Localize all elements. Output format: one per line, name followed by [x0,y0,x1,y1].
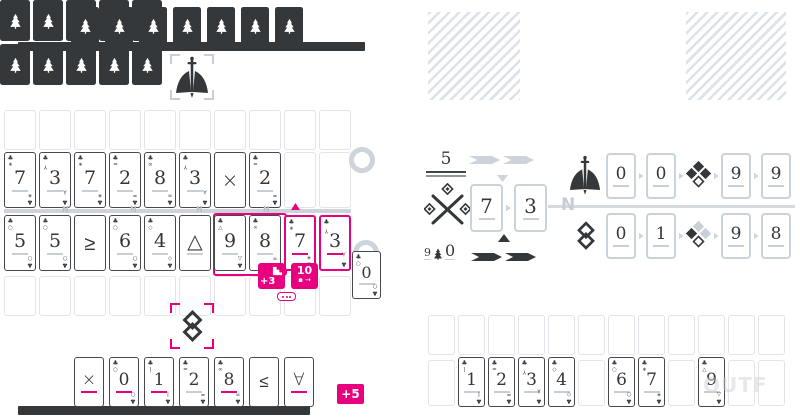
card-7[interactable]: 7♣∗♣∗ [74,152,106,208]
board-slot[interactable] [214,276,246,316]
card-3[interactable]: 3 [514,184,547,232]
card-3[interactable]: 3♣Y♣Y [319,215,351,271]
corner-marks: ♣Y [536,391,542,404]
suit-tree-icon: ♣ [272,199,278,206]
corner-marks: ♣| [462,360,468,373]
arrow-right-icon [639,233,644,240]
card-rank: 5 [49,232,61,251]
divider-mark: N [196,206,203,214]
rank-glyph-icon: Y [203,192,206,198]
rank-glyph-icon: = [506,391,511,397]
corner-marks: ♣○ [113,218,119,231]
rank-glyph-icon: Y [44,163,47,169]
tableau-slot[interactable] [668,315,695,355]
rank-glyph-icon: ∗ [78,163,83,169]
board-slot[interactable] [319,276,351,316]
suit-tree-icon: ♣ [476,398,482,405]
card-face: 2 [494,372,510,393]
target-score-value: 5 [426,150,466,169]
token-circle[interactable] [349,147,375,173]
rank-underline [47,253,63,255]
chevron-right-icon [471,253,502,261]
rank-glyph-icon: = [492,368,497,374]
player-hand: ×0♣○♣○1♣|♣|2♣=♣=8♣∞♣∞≤∀ [74,357,314,407]
tableau-slot[interactable] [548,315,575,355]
card-rank: 3 [524,196,537,216]
card-face: 8 [768,226,784,247]
arrow-right-icon [754,233,759,240]
rank-underline [479,218,495,220]
rank-glyph-icon: ∞ [218,368,223,374]
corner-marks: ♣∗ [289,219,295,232]
tableau-slot[interactable] [698,315,725,355]
card-face: 0 [653,166,669,187]
bracket-corner [204,90,214,100]
rank-glyph-icon: Y [325,227,328,233]
card-0[interactable]: 0♣○♣○ [109,357,139,407]
card-face: 1 [653,226,669,247]
advance-arrows-muted[interactable] [469,156,534,164]
card-×[interactable]: × [74,357,104,407]
corner-marks: ♣= [132,192,138,205]
advance-arrows-dark[interactable] [471,253,536,261]
card-△[interactable]: △ [179,215,211,271]
card-2[interactable]: 2♣=♣= [488,357,515,407]
suit-tree-icon: ♣ [218,218,224,225]
suit-tree-icon: ♣ [253,218,259,225]
suit-tree-icon: ♣ [289,219,295,226]
card-9: 9 [721,213,751,259]
tableau-slot[interactable] [428,360,455,406]
tree-icon [181,18,194,34]
rank-underline [257,190,273,192]
corner-marks: ♣| [165,391,171,404]
card-face: 1 [151,372,167,393]
rank-glyph-icon: = [272,192,277,198]
board-slot[interactable] [284,110,316,150]
rank-underline [768,245,784,247]
card-face: 5 [12,232,28,255]
rank-glyph-icon: = [253,163,258,169]
target-score: 5 [426,150,466,177]
suit-tree-icon: ♣ [27,199,33,206]
rank-glyph-icon: Y [342,254,345,260]
rank-glyph-icon: Y [63,192,66,198]
rank-underline [187,253,203,255]
card-0: 0 [606,153,636,199]
rank-glyph-icon: | [167,391,169,397]
card-face: 6 [614,372,630,393]
tree-icon [249,18,262,34]
rank-glyph-icon: ∗ [289,227,294,233]
card-face: 7 [479,196,495,220]
score-divider-line [548,205,795,208]
rank-underline [82,190,98,192]
card-≥[interactable]: ≥ [74,215,106,271]
card-0[interactable]: 0♣○♣○ [352,251,381,299]
triangle-up-icon[interactable] [498,234,510,242]
board-slot[interactable] [74,276,106,316]
card-9[interactable]: 9♣△♣△ [214,215,246,271]
card-1: 1 [646,213,676,259]
card-2[interactable]: 2♣=♣= [179,357,209,407]
card-face: 8 [152,169,168,192]
plus-five-badge: +5 [337,384,364,404]
card-rank: 6 [616,372,627,389]
tree-icon [113,18,126,34]
corner-marks: ♣∗ [642,360,648,373]
bonus-steps-value: +3 [260,277,275,287]
card-face: ∀ [291,372,307,393]
corner-marks: ♣◇ [148,218,154,231]
tableau-slot[interactable] [638,315,665,355]
suit-tree-icon: ♣ [62,262,68,269]
bracket-corner [204,54,214,64]
corner-marks: ♣∞ [148,155,154,168]
corner-marks: ♣Y [43,155,49,168]
rank-glyph-icon: ∗ [8,163,13,169]
arrow-right-icon [714,173,719,180]
game-board: 7♣∗♣∗3♣Y♣Y7♣∗♣∗2♣=♣=8♣∞♣∞3♣Y♣Y×2♣=♣= NNN… [0,0,800,420]
rank-underline [523,218,539,220]
rank-glyph-icon: ○ [62,255,67,261]
rank-underline [728,245,744,247]
corner-marks: ♣Y [62,192,68,205]
card-rank: △ [187,231,202,251]
suit-tree-icon: ♣ [148,155,154,162]
corner-marks: ♣∗ [8,155,14,168]
card-∀[interactable]: ∀ [284,357,314,407]
card-8[interactable]: 8♣∞♣∞ [214,357,244,407]
card-rank: 7 [84,169,96,188]
card-rank: 0 [616,226,627,243]
multiplier-left: 9 [424,246,431,260]
rank-glyph-icon: ∗ [27,192,32,198]
board-slot[interactable] [74,110,106,150]
rank-glyph-icon: ○ [113,368,118,374]
reserve-card-back[interactable] [33,0,63,41]
card-rank: 3 [329,232,341,251]
suit-tree-icon: ♣ [113,218,119,225]
tableau-slot[interactable] [578,360,605,406]
corner-marks: ♣Y [341,254,347,267]
suit-tree-icon: ♣ [200,398,206,405]
card-face: 1 [464,372,480,393]
linked-diamonds-icon [179,310,206,343]
corner-marks: ♣∞ [167,192,173,205]
board-slot[interactable] [4,110,36,150]
card-rank: 5 [14,232,26,251]
suit-tree-icon: ♣ [716,398,722,405]
board-slot[interactable] [109,110,141,150]
tree-icon [147,18,160,34]
rank-glyph-icon: ∞ [148,163,153,169]
card-rank: 7 [480,196,493,216]
corner-marks: ♣○ [612,360,618,373]
bracket-corner [170,339,180,349]
corner-marks: ♣○ [27,255,33,268]
card-rank: 7 [646,372,657,389]
tableau-slot[interactable] [728,315,755,355]
rank-underline [12,190,28,192]
tableau-slot[interactable] [578,315,605,355]
card-face: 4 [554,372,570,393]
corner-marks: ♣○ [372,283,378,296]
card-2[interactable]: 2♣=♣= [249,152,281,208]
triangle-down-icon[interactable] [497,175,508,182]
card-5[interactable]: 5♣○♣○ [39,215,71,271]
corner-marks: ♣= [272,192,278,205]
board-slot[interactable] [179,110,211,150]
divider-mark: N [263,206,270,214]
card-face: ≥ [85,233,96,253]
rank-underline [222,253,238,255]
arrow-right-icon [506,205,511,212]
card-rank: 3 [526,372,537,389]
nav-letter: N [561,197,575,214]
corner-marks: ♣○ [43,218,49,231]
card-1[interactable]: 1♣|♣| [458,357,485,407]
card-rank: 0 [361,265,371,281]
board-slot[interactable] [144,110,176,150]
suit-tree-icon: ♣ [27,262,33,269]
board-slot[interactable] [249,110,281,150]
score-row-top: 0099 [606,153,791,199]
chevron-right-icon [469,156,500,164]
rank-underline [291,391,307,393]
rank-glyph-icon: = [113,163,118,169]
board-slot[interactable] [39,276,71,316]
suit-tree-icon: ♣ [165,398,171,405]
corner-marks: ♣| [476,391,482,404]
rank-glyph-icon: Y [537,391,540,397]
card-face: 2 [186,372,202,393]
clover-icon [686,160,711,189]
corner-marks: ♣Y [202,192,208,205]
corner-marks: ♣◇ [552,360,558,373]
board-slot[interactable] [214,110,246,150]
suit-tree-icon: ♣ [148,218,154,225]
board-row-1: 7♣∗♣∗3♣Y♣Y7♣∗♣∗2♣=♣=8♣∞♣∞3♣Y♣Y×2♣=♣= [4,152,351,208]
rank-underline [613,185,629,187]
card-5[interactable]: 5♣○♣○ [4,215,36,271]
board-slot[interactable] [109,276,141,316]
card-≤[interactable]: ≤ [249,357,279,407]
rank-glyph-icon: ∞ [253,226,258,232]
opponent-card-back [275,7,303,45]
tree-icon [42,57,55,73]
card-rank: 0 [656,166,667,183]
card-rank: 6 [119,232,131,251]
suit-tree-icon: ♣ [656,398,662,405]
board-slot[interactable] [39,110,71,150]
corner-marks: ♣△ [237,255,243,268]
tableau-slot[interactable] [608,315,635,355]
card-×[interactable]: × [214,152,246,208]
tableau-row-top [428,315,785,355]
rank-glyph-icon: ◇ [167,255,171,261]
rank-glyph-icon: ○ [43,226,48,232]
card-4[interactable]: 4♣◇♣◇ [144,215,176,271]
reserve-zone-left [428,12,520,100]
tableau-slot[interactable] [428,315,455,355]
suit-tree-icon: ♣ [43,155,49,162]
card-rank: 8 [771,226,782,243]
board-slot[interactable] [284,152,316,208]
card-3[interactable]: 3♣Y♣Y [39,152,71,208]
rank-glyph-icon: ○ [626,391,631,397]
rank-underline [728,185,744,187]
card-rank: 1 [656,226,667,243]
clover-icon [686,220,711,249]
rank-glyph-icon: ∗ [656,391,661,397]
tree-icon [79,18,92,34]
card-7[interactable]: 7 [470,184,503,232]
rank-glyph-icon: ○ [130,391,135,397]
card-icon: ▪ [298,277,303,284]
card-rank: 7 [14,169,26,188]
opponent-card-back [105,7,133,45]
card-face: 8 [257,232,273,255]
card-face: 2 [117,169,133,192]
board-slot[interactable] [319,152,351,208]
faction-top-selector[interactable] [170,54,214,100]
suit-tree-icon: ♣ [341,261,347,268]
rule-line [426,175,466,177]
corner-marks: ♣○ [113,360,119,373]
player-shelf [18,406,310,415]
card-rank: ∀ [293,372,305,389]
rank-glyph-icon: ○ [113,226,118,232]
corner-marks: ♣∗ [27,192,33,205]
tableau-slot[interactable] [668,360,695,406]
tree-icon [75,57,88,73]
suit-tree-icon: ♣ [97,199,103,206]
reserve-card-back[interactable] [0,0,30,41]
rank-underline [152,253,168,255]
board-slot[interactable] [4,276,36,316]
corner-marks: ♣∞ [253,218,259,231]
card-rank: 2 [189,372,200,389]
card-face: 7 [12,169,28,192]
card-face: 3 [187,169,203,192]
rank-glyph-icon: = [183,368,188,374]
corner-marks: ♣= [506,391,512,404]
arrow-right-icon [679,173,684,180]
tree-icon [141,57,154,73]
suit-tree-icon: ♣ [78,155,84,162]
card-3[interactable]: 3♣Y♣Y [179,152,211,208]
opponent-card-back [173,7,201,45]
corner-marks: ♣Y [324,219,330,232]
card-4[interactable]: 4♣◇♣◇ [548,357,575,407]
card-face: 6 [117,232,133,255]
rank-glyph-icon: ○ [8,226,13,232]
rank-underline [152,190,168,192]
rank-glyph-icon: ○ [27,255,32,261]
card-rank: 7 [294,232,306,251]
rank-underline [117,190,133,192]
reserve-zone-right [686,12,786,100]
card-3[interactable]: 3♣Y♣Y [518,357,545,407]
suit-tree-icon: ♣ [702,360,708,367]
rank-underline [653,245,669,247]
card-2[interactable]: 2♣=♣= [109,152,141,208]
card-7[interactable]: 7♣∗♣∗ [4,152,36,208]
chevron-right-icon [505,253,536,261]
rank-glyph-icon: ○ [612,368,617,374]
rule-line [426,171,466,173]
arrow-right-icon [679,233,684,240]
corner-marks: ♣= [253,155,259,168]
rank-glyph-icon: ○ [372,283,377,289]
tableau-slot[interactable] [758,315,785,355]
card-face: 4 [152,232,168,255]
rank-underline [187,190,203,192]
card-8[interactable]: 8♣∞♣∞ [144,152,176,208]
suit-tree-icon: ♣ [167,199,173,206]
suit-tree-icon: ♣ [132,262,138,269]
card-6[interactable]: 6♣○♣○ [109,215,141,271]
rank-glyph-icon: ◇ [148,226,152,232]
card-rank: 8 [224,372,235,389]
tree-icon [215,18,228,34]
multiplier-right: 0 [445,243,455,260]
board-slot[interactable] [319,110,351,150]
tableau-slot[interactable] [518,315,545,355]
card-rank: 9 [731,226,742,243]
card-face: 5 [47,232,63,255]
card-rank: × [82,372,96,389]
corner-marks: ♣○ [626,391,632,404]
corner-marks: ♣∗ [656,391,662,404]
rank-glyph-icon: ∗ [97,192,102,198]
rank-underline [12,253,28,255]
tree-icon [9,57,22,73]
tree-icon [9,13,22,29]
tableau-slot[interactable] [488,315,515,355]
arrow-right-icon [639,173,644,180]
board-row-top [4,110,351,150]
corner-marks: ♣△ [218,218,224,231]
suit-tree-icon: ♣ [218,360,224,367]
card-7[interactable]: 7♣∗♣∗ [638,357,665,407]
card-rank: 8 [259,232,271,251]
chevron-right-icon [503,156,534,164]
rank-glyph-icon: | [149,368,151,374]
corner-marks: ♣= [492,360,498,373]
suit-tree-icon: ♣ [626,398,632,405]
faction-bottom-selector[interactable] [170,303,214,349]
suit-tree-icon: ♣ [8,218,14,225]
corner-marks: ♣= [200,391,206,404]
opponent-card-back [71,7,99,45]
card-rank: × [222,170,239,190]
suit-tree-icon: ♣ [612,360,618,367]
corner-marks: ♣| [148,360,154,373]
card-6[interactable]: 6♣○♣○ [608,357,635,407]
card-1[interactable]: 1♣|♣| [144,357,174,407]
card-face: ≤ [259,374,268,391]
rank-glyph-icon: ∗ [306,254,311,260]
tableau-slot[interactable] [458,315,485,355]
corner-marks: ♣∞ [235,391,241,404]
corner-marks: ♣○ [356,254,362,267]
card-rank: 3 [49,169,61,188]
suit-tree-icon: ♣ [167,262,173,269]
card-face: △ [187,231,203,255]
suit-tree-icon: ♣ [324,219,330,226]
